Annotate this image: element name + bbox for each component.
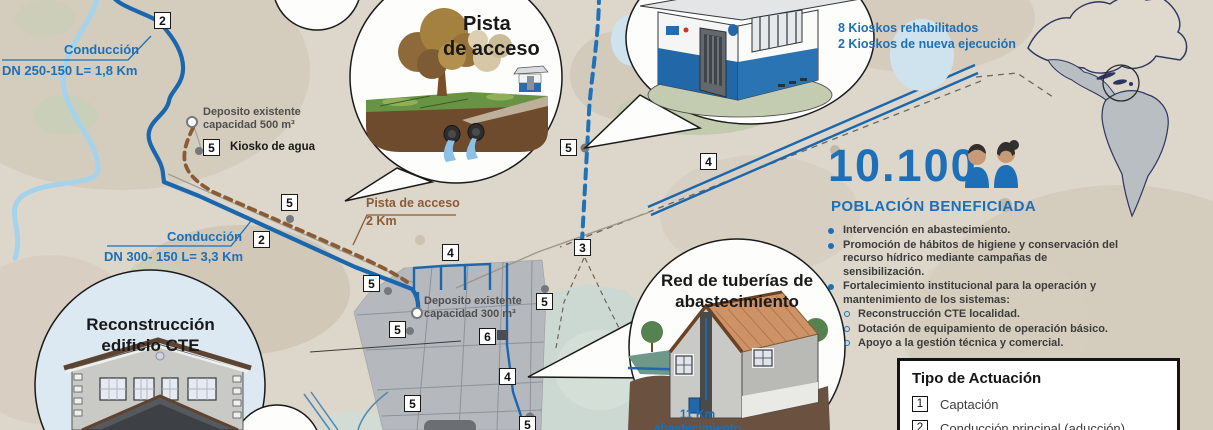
- conduction1-label: Conducción: [64, 42, 139, 57]
- map-marker: 4: [700, 153, 717, 170]
- bullet-icon: [828, 284, 834, 290]
- conduction1-spec: DN 250-150 L= 1,8 Km: [2, 63, 137, 78]
- map-marker: 3: [574, 239, 591, 256]
- dashed-conduction: [582, 0, 599, 242]
- map-marker: 5: [519, 416, 536, 430]
- deposit-500-label: Deposito existentecapacidad 500 m³: [203, 106, 301, 132]
- map-marker: 5: [389, 321, 406, 338]
- cte-bubble-title: Reconstrucciónedificio CTE: [58, 314, 243, 357]
- map-marker: 5: [281, 194, 298, 211]
- benefit-subitem: Reconstrucción CTE localidad.: [842, 308, 1128, 322]
- map-marker: 5: [363, 275, 380, 292]
- conduction2-label: Conducción: [167, 229, 242, 244]
- conduction2-spec: DN 300- 150 L= 3,3 Km: [104, 249, 243, 264]
- legend-title: Tipo de Actuación: [912, 370, 1165, 387]
- map-marker: 5: [536, 293, 553, 310]
- map-marker: 4: [499, 368, 516, 385]
- circle-bullet-icon: [844, 340, 850, 346]
- people-icon: [962, 140, 1026, 195]
- pista-bubble-title: Pista de acceso: [443, 12, 540, 62]
- map-marker: 6: [479, 328, 496, 345]
- water-kiosk-label: Kiosko de agua: [230, 141, 315, 155]
- population-count: 10.100: [828, 143, 978, 188]
- map-marker: 5: [404, 395, 421, 412]
- map-marker: 2: [253, 231, 270, 248]
- benefit-subitem: Apoyo a la gestión técnica y comercial.: [842, 337, 1128, 351]
- legend-number-badge: 1: [912, 396, 928, 412]
- benefits-list: Intervención en abastecimiento. Promoció…: [826, 224, 1128, 352]
- benefit-item: Promoción de hábitos de higiene y conser…: [826, 239, 1128, 280]
- deposit-300-label: Deposito existentecapacidad 300 m³: [424, 295, 522, 321]
- benefit-item: Fortalecimiento institucional para la op…: [826, 280, 1128, 307]
- map-marker: 5: [560, 139, 577, 156]
- map-marker: 2: [154, 12, 171, 29]
- circle-bullet-icon: [844, 311, 850, 317]
- access-road-label: Pista de acceso 2 Km: [366, 196, 460, 229]
- bullet-icon: [828, 243, 834, 249]
- infographic-canvas: Conducción DN 250-150 L= 1,8 Km Conducci…: [0, 0, 1213, 430]
- kiosks-summary: 8 Kioskos rehabilitados2 Kioskos de nuev…: [838, 20, 1016, 52]
- legend-number-badge: 2: [912, 420, 928, 430]
- network-bubble-title: Red de tuberías deabastecimiento: [637, 270, 837, 313]
- legend-item: 1 Captación: [912, 396, 1165, 412]
- population-label: POBLACIÓN BENEFICIADA: [831, 198, 1036, 215]
- supply-length-label: 11 Kmabastecimiento: [640, 407, 755, 430]
- legend-box: Tipo de Actuación 1 Captación 2 Conducci…: [897, 358, 1180, 430]
- bullet-icon: [828, 228, 834, 234]
- benefit-item: Intervención en abastecimiento.: [826, 224, 1128, 238]
- benefit-subitem: Dotación de equipamiento de operación bá…: [842, 323, 1128, 337]
- map-marker: 4: [442, 244, 459, 261]
- americas-map: [1028, 0, 1187, 216]
- map-marker: 5: [203, 139, 220, 156]
- circle-bullet-icon: [844, 326, 850, 332]
- legend-item: 2 Conducción principal (aducción): [912, 420, 1165, 430]
